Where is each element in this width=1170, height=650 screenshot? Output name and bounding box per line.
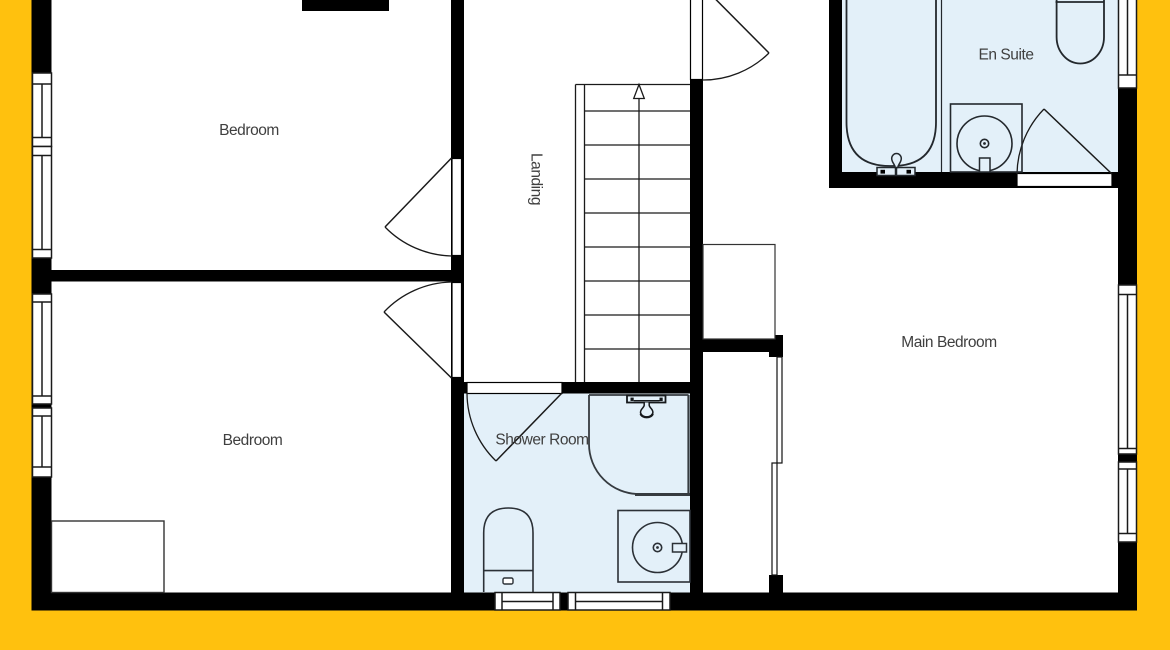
svg-text:Bedroom: Bedroom bbox=[219, 122, 279, 139]
svg-text:Shower Room: Shower Room bbox=[495, 432, 588, 449]
svg-text:En Suite: En Suite bbox=[979, 47, 1034, 64]
svg-text:Landing: Landing bbox=[528, 153, 545, 205]
svg-text:Main Bedroom: Main Bedroom bbox=[901, 334, 996, 351]
svg-text:Bedroom: Bedroom bbox=[223, 432, 283, 449]
